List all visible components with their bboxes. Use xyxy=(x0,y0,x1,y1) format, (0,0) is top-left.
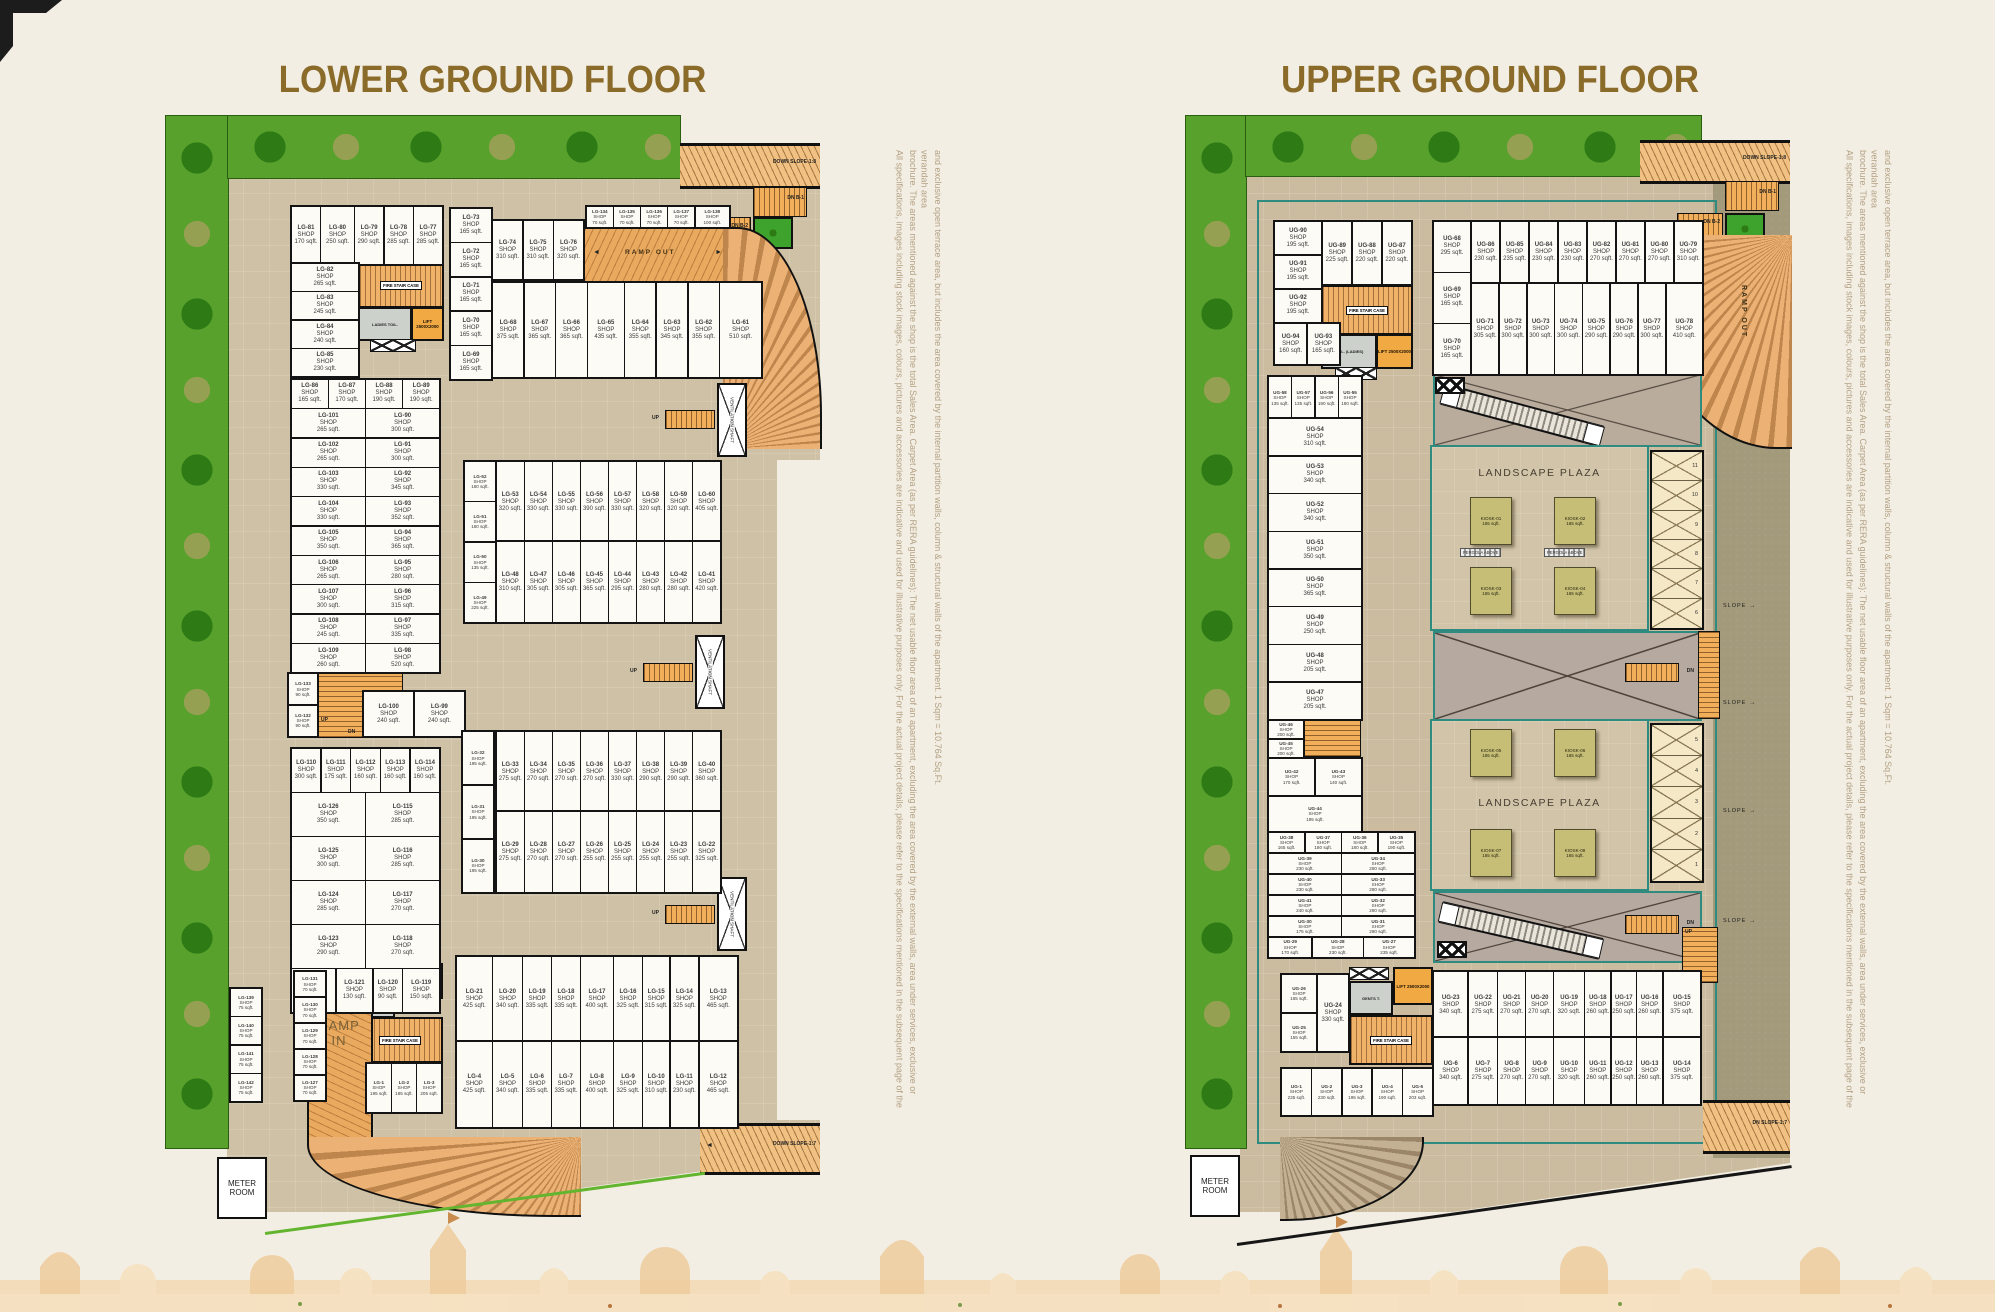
landscape-plaza-1: LANDSCAPE PLAZA PERGOLA ABOVE PERGOLA AB… xyxy=(1430,445,1649,631)
slope-label: SLOPE xyxy=(1723,700,1756,706)
shop-unit: UG-72SHOP300 sqft. xyxy=(1500,284,1526,374)
shop-unit: LG-1SHOP195 sqft. xyxy=(367,1064,391,1112)
shop-unit: LG-44SHOP295 sqft. xyxy=(609,542,636,622)
shop-unit: UG-23SHOP340 sqft. xyxy=(1434,972,1467,1038)
shop-unit: UG-87SHOP220 sqft. xyxy=(1383,222,1411,284)
shop-unit: LG-51SHOP160 sqft. xyxy=(465,502,495,541)
kiosk: KIOSK-03165 sqft. xyxy=(1470,567,1512,615)
slope-label: SLOPE xyxy=(1723,603,1756,609)
fire-stair-label: FIRE STAIR CASE xyxy=(380,281,422,290)
shop-unit: LG-59SHOP320 sqft. xyxy=(665,462,692,542)
shop-unit: LG-111SHOP175 sqft. xyxy=(322,749,350,792)
shop-unit: UG-36SHOP180 sqft. xyxy=(1342,833,1377,852)
shop-unit: UG-41SHOP240 sqft. xyxy=(1269,896,1341,915)
ventilation-shaft: VENTILATION SHAFT xyxy=(695,635,725,709)
dn-label: DN xyxy=(1687,669,1694,675)
shop-unit: LG-11SHOP230 sqft. xyxy=(671,1042,698,1127)
shop-unit: LG-86SHOP165 sqft. xyxy=(292,380,328,408)
ventilation-shaft-icon xyxy=(370,339,416,352)
shop-unit: UG-55SHOP190 sqft. xyxy=(1339,377,1361,419)
down-slope-ramp-bottom: ◄ DOWN SLOPE-1:7 xyxy=(700,1123,820,1175)
shop-unit: UG-50SHOP365 sqft. xyxy=(1269,570,1361,606)
shop-block: LG-29SHOP275 sqft.LG-28SHOP270 sqft.LG-2… xyxy=(495,810,722,894)
shop-unit: LG-41SHOP420 sqft. xyxy=(693,542,720,622)
shop-unit: UG-12SHOP250 sqft. xyxy=(1612,1038,1636,1104)
shop-unit: LG-77SHOP285 sqft. xyxy=(414,207,442,264)
lower-ground-title: LOWER GROUND FLOOR xyxy=(165,58,820,101)
shop-unit: LG-33SHOP275 sqft. xyxy=(497,732,524,812)
shop-unit: UG-3SHOP195 sqft. xyxy=(1343,1069,1372,1115)
shop-unit: LG-90SHOP300 sqft. xyxy=(366,409,439,437)
shop-unit: LG-80SHOP250 sqft. xyxy=(321,207,353,264)
shop-unit: LG-50SHOP135 sqft. xyxy=(465,543,495,582)
shop-unit: UG-31SHOP280 sqft. xyxy=(1342,917,1414,936)
shop-unit: LG-119SHOP150 sqft. xyxy=(403,969,439,1012)
shop-unit: LG-107SHOP300 sqft. xyxy=(292,585,365,613)
shop-unit: LG-129SHOP70 sqft. xyxy=(295,1024,325,1048)
shop-block: LG-131SHOP70 sqft.LG-130SHOP70 sqft.LG-1… xyxy=(293,970,327,1102)
ramp-out-label: RAMP OUT xyxy=(625,249,676,256)
parking-slot: 5 xyxy=(1652,725,1702,756)
shop-unit: LG-133SHOP90 sqft. xyxy=(289,674,317,704)
shop-unit: LG-123SHOP290 sqft. xyxy=(292,925,365,968)
shop-unit: LG-68SHOP375 sqft. xyxy=(493,283,523,377)
shop-unit: UG-49SHOP250 sqft. xyxy=(1269,607,1361,643)
shop-unit: LG-141SHOP75 sqft. xyxy=(231,1046,261,1073)
shop-unit: LG-136SHOP70 sqft. xyxy=(641,207,667,227)
dn-b1-label: DN B-1 xyxy=(787,196,804,202)
dn-slope-label: DN SLOPE-1:7 xyxy=(1753,1121,1787,1127)
shop-unit: UG-84SHOP230 sqft. xyxy=(1530,222,1557,282)
shop-block: UG-23SHOP340 sqft.UG-22SHOP275 sqft.UG-2… xyxy=(1432,970,1702,1040)
parking-slot: 2 xyxy=(1652,819,1702,850)
shop-unit: LG-131SHOP70 sqft. xyxy=(295,972,325,996)
shop-unit: LG-42SHOP280 sqft. xyxy=(665,542,692,622)
shop-unit: LG-15SHOP315 sqft. xyxy=(643,957,669,1042)
shop-block: UG-46SHOP200 sqft.UG-45SHOP200 sqft. xyxy=(1267,719,1305,759)
shop-unit: UG-42SHOP170 sqft. xyxy=(1269,759,1314,795)
shop-unit: LG-115SHOP285 sqft. xyxy=(366,793,439,836)
shop-unit: UG-6SHOP340 sqft. xyxy=(1434,1038,1467,1104)
parking-slot: 4 xyxy=(1652,756,1702,787)
shop-unit: LG-57SHOP330 sqft. xyxy=(609,462,636,542)
shop-block: UG-94SHOP160 sqft.UG-93SHOP165 sqft. xyxy=(1273,322,1341,366)
shop-unit: LG-61SHOP510 sqft. xyxy=(720,283,761,377)
meter-room: METER ROOM xyxy=(1190,1155,1240,1217)
parking-slot: 1 xyxy=(1652,850,1702,881)
shop-unit: UG-18SHOP260 sqft. xyxy=(1585,972,1610,1038)
shop-unit: UG-21SHOP270 sqft. xyxy=(1498,972,1525,1038)
shop-unit: LG-49SHOP225 sqft. xyxy=(465,583,495,622)
shop-block: UG-26SHOP165 sqft.UG-25SHOP155 sqft. xyxy=(1280,973,1318,1053)
pergola-label: PERGOLA ABOVE xyxy=(1544,548,1585,557)
shop-unit: LG-120SHOP90 sqft. xyxy=(374,969,402,1012)
shop-block: UG-68SHOP295 sqft.UG-69SHOP165 sqft.UG-7… xyxy=(1432,220,1472,376)
shop-unit: LG-75SHOP310 sqft. xyxy=(524,221,553,279)
shop-unit: UG-13SHOP260 sqft. xyxy=(1637,1038,1662,1104)
kiosk: KIOSK-07165 sqft. xyxy=(1470,829,1512,877)
shop-unit: UG-25SHOP155 sqft. xyxy=(1282,1014,1316,1051)
shop-unit: LG-34SHOP270 sqft. xyxy=(525,732,552,812)
shop-block: LG-52SHOP160 sqft.LG-51SHOP160 sqft.LG-5… xyxy=(463,460,497,624)
shop-unit: UG-24SHOP330 sqft. xyxy=(1318,975,1348,1051)
shop-unit: LG-21SHOP425 sqft. xyxy=(457,957,492,1042)
shop-unit: LG-124SHOP285 sqft. xyxy=(292,881,365,924)
shop-unit: LG-117SHOP270 sqft. xyxy=(366,881,439,924)
side-stair xyxy=(1698,631,1720,719)
shop-unit: UG-9SHOP270 sqft. xyxy=(1526,1038,1553,1104)
shop-unit: LG-3SHOP205 sqft. xyxy=(417,1064,441,1112)
landscape-strip-top xyxy=(1245,115,1702,177)
shop-unit: LG-134SHOP70 sqft. xyxy=(587,207,613,227)
shop-unit: LG-22SHOP325 sqft. xyxy=(693,812,720,892)
disclaimer-line: All specifications, images including sto… xyxy=(893,150,905,1110)
disclaimer-line: and exclusive open terrace area, but inc… xyxy=(1882,150,1894,1110)
shop-unit: UG-7SHOP275 sqft. xyxy=(1469,1038,1497,1104)
shop-unit: LG-112SHOP160 sqft. xyxy=(351,749,379,792)
ramp-out-label: RAMP OUT xyxy=(1740,285,1747,338)
shop-unit: LG-13SHOP465 sqft. xyxy=(700,957,737,1042)
shop-unit: LG-24SHOP255 sqft. xyxy=(637,812,664,892)
shop-unit: UG-39SHOP230 sqft. xyxy=(1269,854,1341,873)
gents-toilet: GENTS T. xyxy=(1349,981,1393,1015)
shop-unit: LG-128SHOP70 sqft. xyxy=(295,1050,325,1074)
ventilation-shaft-label: VENTILATION SHAFT xyxy=(730,889,735,939)
shop-block: LG-53SHOP320 sqft.LG-54SHOP330 sqft.LG-5… xyxy=(495,460,722,544)
shop-unit: LG-64SHOP355 sqft. xyxy=(625,283,655,377)
shop-unit: LG-87SHOP170 sqft. xyxy=(329,380,365,408)
shop-unit: LG-14SHOP325 sqft. xyxy=(671,957,698,1042)
ramp-out-band: ◄ RAMP OUT ► xyxy=(583,227,732,283)
shop-unit: UG-32SHOP280 sqft. xyxy=(1342,896,1414,915)
shop-unit: LG-103SHOP330 sqft. xyxy=(292,468,365,496)
shop-unit: UG-20SHOP270 sqft. xyxy=(1526,972,1553,1038)
shop-unit: LG-52SHOP160 sqft. xyxy=(465,462,495,501)
shop-unit: LG-137SHOP70 sqft. xyxy=(668,207,694,227)
parking-slot: 11 xyxy=(1652,452,1702,481)
shop-unit: UG-19SHOP320 sqft. xyxy=(1554,972,1583,1038)
shop-unit: LG-92SHOP345 sqft. xyxy=(366,468,439,496)
shop-unit: UG-48SHOP205 sqft. xyxy=(1269,645,1361,681)
shop-unit: LG-140SHOP75 sqft. xyxy=(231,1017,261,1044)
shop-unit: LG-58SHOP320 sqft. xyxy=(637,462,664,542)
lift: LIFT 2500X2000 xyxy=(411,307,444,341)
up-stair: UP xyxy=(643,663,693,682)
shop-unit: UG-2SHOP230 sqft. xyxy=(1312,1069,1341,1115)
up-label: UP xyxy=(652,416,659,422)
shop-unit: LG-69SHOP165 sqft. xyxy=(451,346,491,379)
shop-unit: UG-88SHOP220 sqft. xyxy=(1353,222,1381,284)
shop-unit: LG-40SHOP360 sqft. xyxy=(693,732,720,812)
dn-stair: DN xyxy=(1625,915,1679,934)
parking-slots-top: 11109876 xyxy=(1650,450,1704,630)
down-slope-label: DOWN SLOPE-1:8 xyxy=(773,160,816,166)
parking-slot: 6 xyxy=(1652,599,1702,628)
stair-dn-b1: DN B-1 xyxy=(753,187,807,217)
shop-unit: LG-10SHOP310 sqft. xyxy=(643,1042,669,1127)
shop-block: LG-1SHOP195 sqft.LG-2SHOP185 sqft.LG-3SH… xyxy=(365,1062,443,1114)
shop-unit: LG-132SHOP90 sqft. xyxy=(289,706,317,736)
shop-unit: LG-28SHOP270 sqft. xyxy=(525,812,552,892)
shop-unit: LG-26SHOP255 sqft. xyxy=(581,812,608,892)
shop-unit: UG-52SHOP340 sqft. xyxy=(1269,494,1361,530)
shop-unit: LG-17SHOP400 sqft. xyxy=(581,957,613,1042)
landscape-plaza-2: LANDSCAPE PLAZA KIOSK-05165 sqft.KIOSK-0… xyxy=(1430,719,1649,891)
brochure-page: LOWER GROUND FLOOR UPPER GROUND FLOOR DO… xyxy=(0,0,1995,1312)
dn-label: DN xyxy=(348,730,355,736)
shop-block: LG-100SHOP240 sqft.LG-99SHOP240 sqft. xyxy=(362,690,466,738)
pergola-label: PERGOLA ABOVE xyxy=(1460,548,1501,557)
shop-unit: LG-109SHOP260 sqft. xyxy=(292,644,365,672)
shop-unit: UG-68SHOP295 sqft. xyxy=(1434,222,1470,272)
shop-unit: LG-25SHOP255 sqft. xyxy=(609,812,636,892)
up-stair: UP xyxy=(665,410,715,429)
shop-unit: UG-76SHOP290 sqft. xyxy=(1611,284,1637,374)
disclaimer-text-left: All specifications, images including sto… xyxy=(893,150,943,1110)
shop-unit: LG-36SHOP270 sqft. xyxy=(581,732,608,812)
shop-unit: UG-5SHOP203 sqft. xyxy=(1403,1069,1432,1115)
shop-unit: UG-15SHOP375 sqft. xyxy=(1664,972,1700,1038)
ramp-arrow-icon: ► xyxy=(715,249,722,256)
kiosk: KIOSK-06165 sqft. xyxy=(1554,729,1596,777)
shop-unit: UG-47SHOP205 sqft. xyxy=(1269,683,1361,719)
shop-unit: UG-69SHOP165 sqft. xyxy=(1434,273,1470,323)
shop-unit: LG-105SHOP350 sqft. xyxy=(292,527,365,555)
shop-unit: UG-93SHOP165 sqft. xyxy=(1308,324,1339,364)
shop-unit: LG-96SHOP315 sqft. xyxy=(366,585,439,613)
shop-unit: LG-63SHOP345 sqft. xyxy=(657,283,687,377)
shop-unit: LG-29SHOP275 sqft. xyxy=(497,812,524,892)
shop-unit: UG-29SHOP170 sqft. xyxy=(1269,938,1311,957)
landscape-strip-left xyxy=(1185,115,1247,1149)
shop-unit: LG-72SHOP165 sqft. xyxy=(451,243,491,276)
slope-label: SLOPE xyxy=(1723,918,1756,924)
shop-unit: UG-79SHOP310 sqft. xyxy=(1675,222,1702,282)
shop-unit: LG-114SHOP160 sqft. xyxy=(411,749,439,792)
shop-unit: UG-26SHOP165 sqft. xyxy=(1282,975,1316,1012)
shop-unit: LG-47SHOP305 sqft. xyxy=(525,542,552,622)
shop-block: UG-42SHOP170 sqft.UG-43SHOP140 sqft. xyxy=(1267,757,1363,797)
shop-unit: UG-37SHOP180 sqft. xyxy=(1306,833,1341,852)
shop-block: LG-68SHOP375 sqft.LG-67SHOP365 sqft.LG-6… xyxy=(491,281,763,379)
shop-unit: LG-32SHOP195 sqft. xyxy=(463,732,493,784)
shop-unit: LG-121SHOP130 sqft. xyxy=(337,969,373,1012)
shop-block: LG-32SHOP195 sqft.LG-31SHOP195 sqft.LG-3… xyxy=(461,730,495,894)
shop-unit: UG-4SHOP190 sqft. xyxy=(1373,1069,1402,1115)
up-label: UP xyxy=(321,718,328,724)
lift: LIFT 2500X2000 xyxy=(1376,334,1413,369)
shop-unit: LG-93SHOP352 sqft. xyxy=(366,497,439,525)
shop-unit: UG-51SHOP350 sqft. xyxy=(1269,532,1361,568)
down-slope-label: DOWN SLOPE-1:8 xyxy=(1743,156,1786,162)
shop-block: LG-48SHOP310 sqft.LG-47SHOP305 sqft.LG-4… xyxy=(495,540,722,624)
up-stair: UP xyxy=(665,905,715,924)
up-label: UP xyxy=(1685,930,1692,936)
shop-unit: LG-84SHOP240 sqft. xyxy=(292,321,358,348)
shop-unit: LG-6SHOP335 sqft. xyxy=(523,1042,550,1127)
shop-unit: LG-125SHOP300 sqft. xyxy=(292,837,365,880)
shop-unit: LG-108SHOP245 sqft. xyxy=(292,615,365,643)
lower-ground-floor-plan: DOWN SLOPE-1:8 DN B-1 DN B-2 ◄ RAMP OUT … xyxy=(165,115,820,1212)
parking-slot: 10 xyxy=(1652,481,1702,510)
disclaimer-line: All specifications, images including sto… xyxy=(1843,150,1855,1110)
shop-unit: UG-70SHOP165 sqft. xyxy=(1434,324,1470,374)
stair-dn-b1: DN B-1 xyxy=(1725,181,1779,211)
fire-staircase: FIRE STAIR CASE xyxy=(358,262,444,308)
shop-unit: LG-45SHOP365 sqft. xyxy=(581,542,608,622)
disclaimer-line: brochure. The areas mentioned against th… xyxy=(1857,150,1880,1110)
shop-unit: UG-92SHOP195 sqft. xyxy=(1275,290,1321,322)
shop-unit: UG-16SHOP260 sqft. xyxy=(1637,972,1662,1038)
shop-block: UG-24SHOP330 sqft. xyxy=(1316,973,1350,1053)
page-corner-mark xyxy=(0,0,70,70)
shop-unit: UG-91SHOP195 sqft. xyxy=(1275,256,1321,288)
upper-ground-floor-plan: DOWN SLOPE-1:8 DN B-1 DN B-2 RAMP OUT FI… xyxy=(1185,115,1795,1212)
ventilation-shaft-label: VENTILATION SHAFT xyxy=(730,395,735,445)
shop-unit: LG-62SHOP355 sqft. xyxy=(689,283,719,377)
shop-block: UG-44SHOP195 sqft. xyxy=(1267,795,1363,833)
shop-unit: UG-73SHOP300 sqft. xyxy=(1528,284,1554,374)
shop-block: UG-38SHOP165 sqft.UG-37SHOP180 sqft.UG-3… xyxy=(1267,831,1416,959)
shop-unit: LG-37SHOP330 sqft. xyxy=(609,732,636,812)
slope-label: SLOPE xyxy=(1723,808,1756,814)
parking-slot: 3 xyxy=(1652,787,1702,818)
shop-unit: UG-40SHOP230 sqft. xyxy=(1269,875,1341,894)
fire-stair-label: FIRE STAIR CASE xyxy=(379,1036,421,1045)
shop-unit: UG-35SHOP190 sqft. xyxy=(1379,833,1414,852)
shop-unit: LG-95SHOP280 sqft. xyxy=(366,556,439,584)
shop-unit: UG-90SHOP195 sqft. xyxy=(1275,222,1321,254)
shop-unit: LG-56SHOP390 sqft. xyxy=(581,462,608,542)
shop-block: UG-6SHOP340 sqft.UG-7SHOP275 sqft.UG-8SH… xyxy=(1432,1036,1702,1106)
disclaimer-line: brochure. The areas mentioned against th… xyxy=(907,150,930,1110)
down-slope-ramp-top: DOWN SLOPE-1:8 xyxy=(680,143,820,189)
dn-slope-ramp-bottom: DN SLOPE-1:7 xyxy=(1703,1100,1790,1154)
shop-unit: UG-81SHOP270 sqft. xyxy=(1617,222,1644,282)
parking-slot: 8 xyxy=(1652,540,1702,569)
shop-unit: UG-58SHOP135 sqft. xyxy=(1269,377,1291,419)
shop-unit: LG-99SHOP240 sqft. xyxy=(415,692,464,736)
fire-staircase: FIRE STAIR CASE xyxy=(1349,1015,1433,1065)
shop-unit: LG-35SHOP270 sqft. xyxy=(553,732,580,812)
shop-block: UG-90SHOP195 sqft.UG-91SHOP195 sqft.UG-9… xyxy=(1273,220,1323,324)
shop-unit: UG-94SHOP160 sqft. xyxy=(1275,324,1306,364)
shop-unit: UG-89SHOP225 sqft. xyxy=(1323,222,1351,284)
shop-unit: UG-86SHOP230 sqft. xyxy=(1472,222,1499,282)
shop-unit: LG-38SHOP290 sqft. xyxy=(637,732,664,812)
fire-stair-label: FIRE STAIR CASE xyxy=(1346,306,1388,315)
shop-block: LG-139SHOP75 sqft.LG-140SHOP75 sqft.LG-1… xyxy=(229,987,263,1103)
shop-unit: LG-31SHOP195 sqft. xyxy=(463,786,493,838)
down-slope-label: DOWN SLOPE-1:7 xyxy=(773,1142,816,1148)
shop-unit: LG-118SHOP270 sqft. xyxy=(366,925,439,968)
shop-block: UG-71SHOP305 sqft.UG-72SHOP300 sqft.UG-7… xyxy=(1470,282,1704,376)
up-label: UP xyxy=(652,911,659,917)
shop-unit: LG-71SHOP165 sqft. xyxy=(451,278,491,311)
shop-unit: UG-38SHOP165 sqft. xyxy=(1269,833,1304,852)
shop-unit: LG-139SHOP75 sqft. xyxy=(231,989,261,1016)
shop-block: LG-74SHOP310 sqft.LG-75SHOP310 sqft.LG-7… xyxy=(491,219,585,281)
kiosk: KIOSK-05165 sqft. xyxy=(1470,729,1512,777)
shop-unit: LG-116SHOP285 sqft. xyxy=(366,837,439,880)
kiosk: KIOSK-01165 sqft. xyxy=(1470,497,1512,545)
meter-room: METER ROOM xyxy=(217,1157,267,1219)
shop-unit: LG-113SHOP160 sqft. xyxy=(381,749,409,792)
shop-unit: UG-14SHOP375 sqft. xyxy=(1664,1038,1700,1104)
dn-stair: DN xyxy=(1625,663,1679,682)
shop-unit: LG-53SHOP320 sqft. xyxy=(497,462,524,542)
dn-b2-label: DN B-2 xyxy=(1703,220,1720,226)
shop-unit: LG-126SHOP350 sqft. xyxy=(292,793,365,836)
shop-unit: LG-9SHOP325 sqft. xyxy=(614,1042,641,1127)
shop-block: LG-82SHOP265 sqft.LG-83SHOP245 sqft.LG-8… xyxy=(290,262,360,378)
shop-unit: UG-22SHOP275 sqft. xyxy=(1469,972,1497,1038)
shop-unit: UG-33SHOP280 sqft. xyxy=(1342,875,1414,894)
ventilation-shaft-icon xyxy=(1349,967,1389,980)
shop-block: LG-133SHOP90 sqft.LG-132SHOP90 sqft. xyxy=(287,672,319,738)
shop-unit: LG-73SHOP165 sqft. xyxy=(451,209,491,242)
shop-unit: UG-71SHOP305 sqft. xyxy=(1472,284,1498,374)
up-label: UP xyxy=(630,669,637,675)
shop-unit: UG-74SHOP300 sqft. xyxy=(1555,284,1581,374)
shop-unit: UG-28SHOP230 sqft. xyxy=(1313,938,1363,957)
shop-unit: LG-67SHOP365 sqft. xyxy=(525,283,555,377)
kiosk: KIOSK-04165 sqft. xyxy=(1554,567,1596,615)
shop-block: UG-54SHOP310 sqft.UG-53SHOP340 sqft.UG-5… xyxy=(1267,417,1363,721)
shop-unit: UG-30SHOP175 sqft. xyxy=(1269,917,1341,936)
shop-unit: LG-30SHOP195 sqft. xyxy=(463,840,493,892)
shop-block: UG-89SHOP225 sqft.UG-88SHOP220 sqft.UG-8… xyxy=(1321,220,1413,286)
shop-block: UG-86SHOP230 sqft.UG-85SHOP235 sqft.UG-8… xyxy=(1470,220,1704,284)
shop-unit: LG-97SHOP335 sqft. xyxy=(366,615,439,643)
ventilation-shaft-icon xyxy=(1437,941,1467,958)
shop-unit: LG-16SHOP325 sqft. xyxy=(614,957,641,1042)
ventilation-shaft: VENTILATION SHAFT xyxy=(717,383,747,457)
shop-unit: LG-60SHOP405 sqft. xyxy=(693,462,720,542)
shop-unit: UG-1SHOP235 sqft. xyxy=(1282,1069,1311,1115)
shop-unit: LG-65SHOP435 sqft. xyxy=(588,283,624,377)
shop-unit: UG-83SHOP230 sqft. xyxy=(1559,222,1586,282)
shop-unit: LG-98SHOP520 sqft. xyxy=(366,644,439,672)
shop-unit: LG-74SHOP310 sqft. xyxy=(493,221,522,279)
kiosk: KIOSK-02165 sqft. xyxy=(1554,497,1596,545)
ramp-arrow-icon: ◄ xyxy=(593,249,600,256)
shop-unit: LG-101SHOP265 sqft. xyxy=(292,409,365,437)
shop-block: LG-33SHOP275 sqft.LG-34SHOP270 sqft.LG-3… xyxy=(495,730,722,814)
shop-unit: UG-57SHOP135 sqft. xyxy=(1292,377,1314,419)
shop-unit: UG-77SHOP300 sqft. xyxy=(1639,284,1665,374)
shop-block: LG-81SHOP170 sqft.LG-80SHOP250 sqft.LG-7… xyxy=(290,205,444,266)
parking-slot: 9 xyxy=(1652,511,1702,540)
shop-unit: LG-110SHOP300 sqft. xyxy=(292,749,320,792)
landscape-plaza-label: LANDSCAPE PLAZA xyxy=(1432,797,1647,809)
shop-unit: LG-66SHOP365 sqft. xyxy=(556,283,586,377)
shop-unit: LG-2SHOP185 sqft. xyxy=(392,1064,416,1112)
shop-unit: LG-18SHOP335 sqft. xyxy=(552,957,579,1042)
mid-staircase xyxy=(1303,719,1361,757)
shop-unit: UG-80SHOP270 sqft. xyxy=(1646,222,1673,282)
shop-unit: LG-46SHOP305 sqft. xyxy=(553,542,580,622)
shop-unit: UG-78SHOP410 sqft. xyxy=(1667,284,1702,374)
shop-unit: UG-54SHOP310 sqft. xyxy=(1269,419,1361,455)
shop-unit: LG-89SHOP190 sqft. xyxy=(403,380,439,408)
shop-unit: LG-48SHOP310 sqft. xyxy=(497,542,524,622)
shop-unit: LG-8SHOP400 sqft. xyxy=(581,1042,613,1127)
ladies-toilet: LADIES TOIL. xyxy=(358,307,412,341)
shop-unit: LG-127SHOP70 sqft. xyxy=(295,1076,325,1100)
shop-unit: UG-56SHOP190 sqft. xyxy=(1316,377,1338,419)
shop-unit: UG-11SHOP260 sqft. xyxy=(1585,1038,1610,1104)
